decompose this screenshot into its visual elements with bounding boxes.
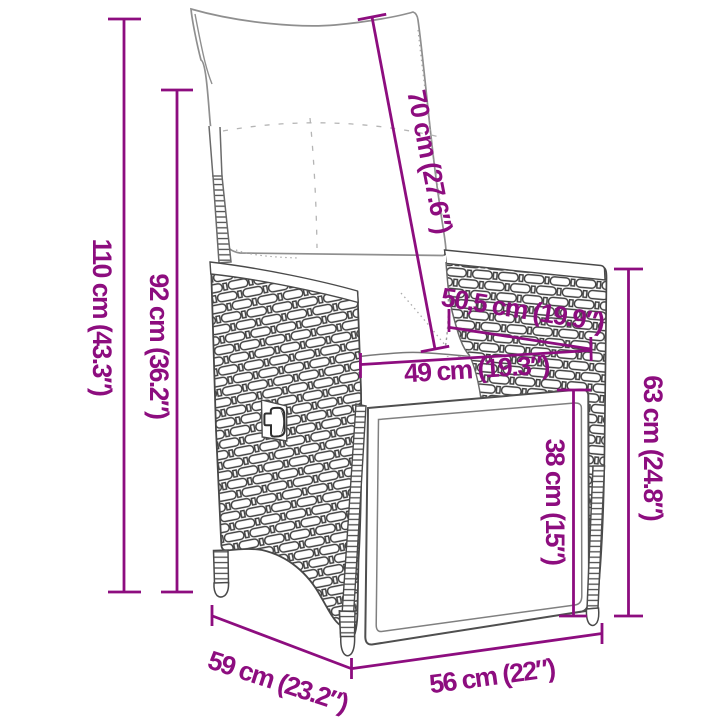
svg-text:38 cm (15″): 38 cm (15″) [540,439,570,565]
svg-text:63 cm (24.8″): 63 cm (24.8″) [638,375,668,521]
svg-text:110 cm (43.3″): 110 cm (43.3″) [87,239,117,396]
svg-text:92 cm (36.2″): 92 cm (36.2″) [144,274,174,420]
